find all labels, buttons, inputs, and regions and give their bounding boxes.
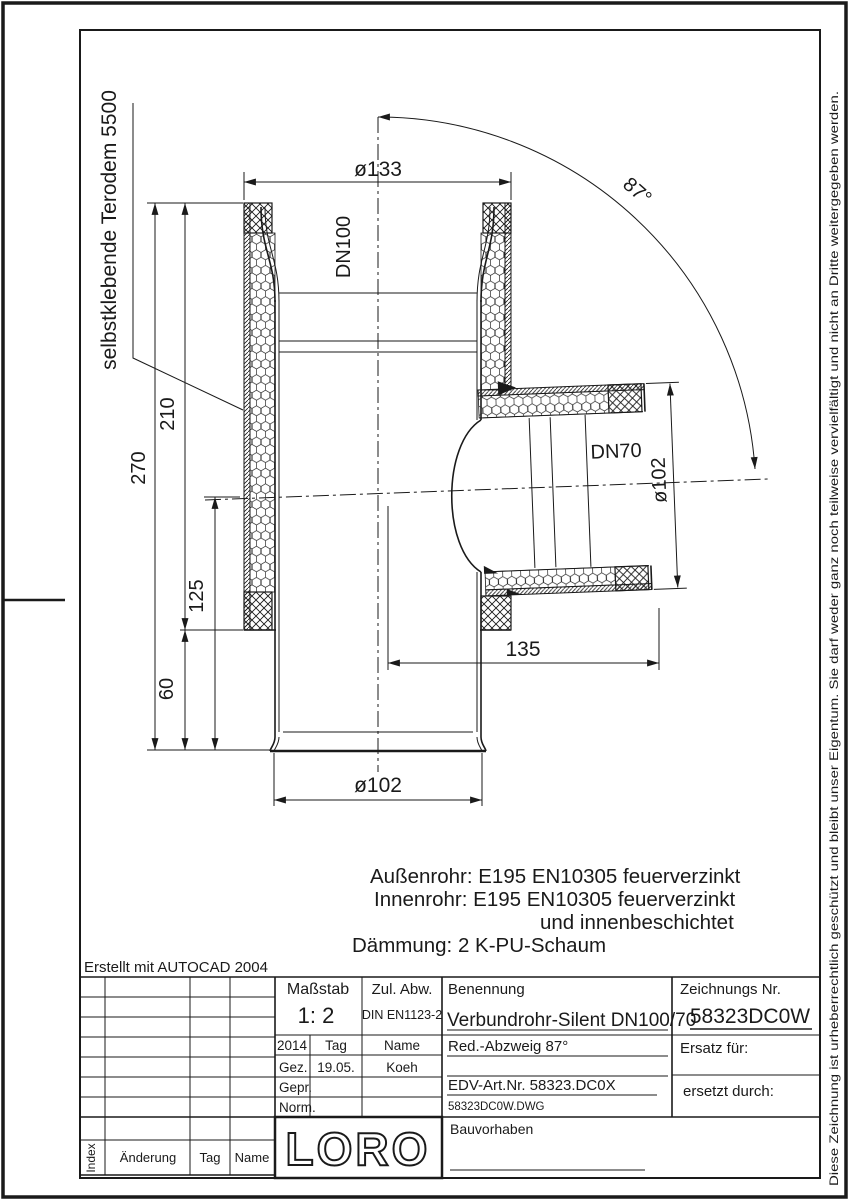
insulation-label: selbstklebende Terodem 5500 <box>98 90 121 370</box>
ersetzt-durch-label: ersetzt durch: <box>683 1083 774 1100</box>
zul-abw-label: Zul. Abw. <box>372 981 433 998</box>
branch-socket-line <box>529 418 535 568</box>
year-value: 2014 <box>277 1038 308 1053</box>
ersatz-fuer-label: Ersatz für: <box>680 1040 748 1057</box>
name-header: Name <box>384 1038 420 1053</box>
note-outer-pipe: Außenrohr: E195 EN10305 feuerverzinkt <box>370 865 741 888</box>
branch-centerline <box>205 479 768 500</box>
copyright-note: Diese Zeichnung ist urheberrechtlich ges… <box>827 91 841 1186</box>
zeichnungs-nr-label: Zeichnungs Nr. <box>680 981 781 998</box>
gez-date: 19.05. <box>317 1060 355 1075</box>
weld-mark <box>484 565 498 574</box>
zul-abw-value: DIN EN1123-2 <box>362 1008 442 1022</box>
norm-label: Norm. <box>279 1100 316 1115</box>
title-block: Erstellt mit AUTOCAD 2004 Index Änderung <box>80 959 820 1178</box>
dim-insulated-height-label: 210 <box>157 397 179 430</box>
branch-socket-line <box>550 417 556 567</box>
benennung-value: Verbundrohr-Silent DN100/70 <box>447 1010 696 1031</box>
dim-branch-center-label: 125 <box>186 579 208 612</box>
gez-name: Koeh <box>386 1060 418 1075</box>
branch-pipe: DN70 ø102 <box>477 374 687 596</box>
bauvorhaben-label: Bauvorhaben <box>450 1121 533 1137</box>
masstab-value: 1: 2 <box>298 1003 335 1028</box>
dimension-insulated-height: 210 <box>157 203 185 630</box>
dim-branch-length-label: 135 <box>505 638 540 661</box>
dwg-filename: 58323DC0W.DWG <box>448 1101 545 1113</box>
revision-table: Index Änderung Tag Name <box>80 977 275 1175</box>
material-notes: Außenrohr: E195 EN10305 feuerverzinkt In… <box>352 865 741 957</box>
subtitle-value: Red.-Abzweig 87° <box>448 1038 568 1055</box>
dimension-total-height: 270 <box>128 203 155 750</box>
dimension-branch-diameter: ø102 <box>645 382 687 589</box>
tag-header: Tag <box>325 1038 347 1053</box>
name-column-label: Name <box>235 1150 270 1165</box>
branch-pipe-label: DN70 <box>590 440 642 464</box>
dim-branch-angle-label: 87° <box>618 173 655 209</box>
masstab-label: Maßstab <box>287 981 349 998</box>
aenderung-column-label: Änderung <box>120 1150 176 1165</box>
index-column-label: Index <box>84 1143 98 1172</box>
note-inner-coating: und innenbeschichtet <box>540 911 734 934</box>
branch-sweep-curve <box>452 420 481 572</box>
dim-spigot-length-label: 60 <box>156 678 178 700</box>
edv-art-nr: EDV-Art.Nr. 58323.DC0X <box>448 1077 616 1094</box>
branch-socket-line <box>585 415 591 567</box>
dim-bottom-diameter-label: ø102 <box>354 774 402 797</box>
drawing-sheet: DN70 ø102 ø133 87° 270 210 60 <box>0 0 849 1200</box>
main-pipe-label: DN100 <box>333 216 355 278</box>
dim-top-diameter-label: ø133 <box>354 158 402 181</box>
loro-logo: LORO <box>286 1123 431 1175</box>
note-inner-pipe: Innenrohr: E195 EN10305 feuerverzinkt <box>374 888 736 911</box>
zeichnungs-nr-value: 58323DC0W <box>690 1005 810 1028</box>
insulation-callout: selbstklebende Terodem 5500 <box>98 90 243 410</box>
dim-total-height-label: 270 <box>128 451 150 484</box>
dimension-branch-center-to-end: 125 <box>186 497 215 750</box>
gez-label: Gez. <box>279 1060 308 1075</box>
note-insulation: Dämmung: 2 K-PU-Schaum <box>352 934 606 957</box>
benennung-label: Benennung <box>448 981 525 998</box>
dim-branch-diameter-label: ø102 <box>648 457 672 503</box>
tag-column-label: Tag <box>200 1150 221 1165</box>
technical-drawing-svg: DN70 ø102 ø133 87° 270 210 60 <box>0 0 849 1200</box>
gepr-label: Gepr. <box>279 1080 312 1095</box>
dimension-spigot-length: 60 <box>156 630 185 750</box>
created-with-note: Erstellt mit AUTOCAD 2004 <box>84 959 268 976</box>
